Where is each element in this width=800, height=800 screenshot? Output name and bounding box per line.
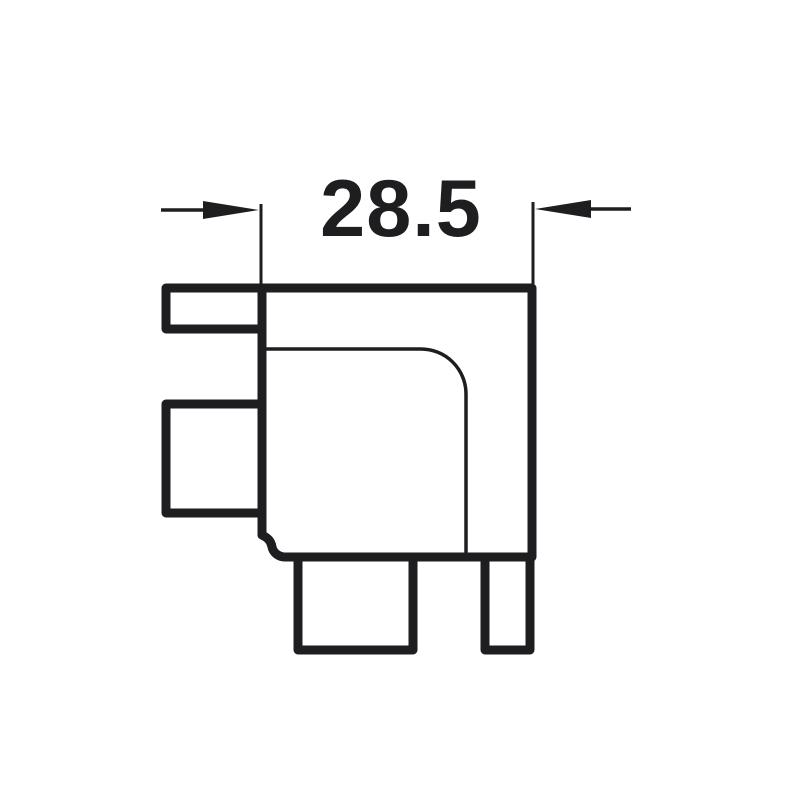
technical-drawing-canvas: 28.5 <box>0 0 800 800</box>
part-top-left-tab <box>166 288 262 329</box>
left-arrowhead-icon <box>203 201 259 219</box>
part-outline-group <box>166 288 532 650</box>
dimension-value-label: 28.5 <box>320 164 482 254</box>
right-arrowhead-icon <box>535 200 591 218</box>
dimension-annotation: 28.5 <box>161 164 631 284</box>
part-bottom-left-foot <box>298 557 413 650</box>
part-body-outline <box>262 288 532 557</box>
inner-corner-profile-line <box>265 349 466 552</box>
part-bottom-right-foot <box>485 557 530 650</box>
part-dimension-drawing: 28.5 <box>0 0 800 800</box>
part-bottom-left-tab <box>166 404 262 513</box>
inner-profile-group <box>265 349 466 552</box>
